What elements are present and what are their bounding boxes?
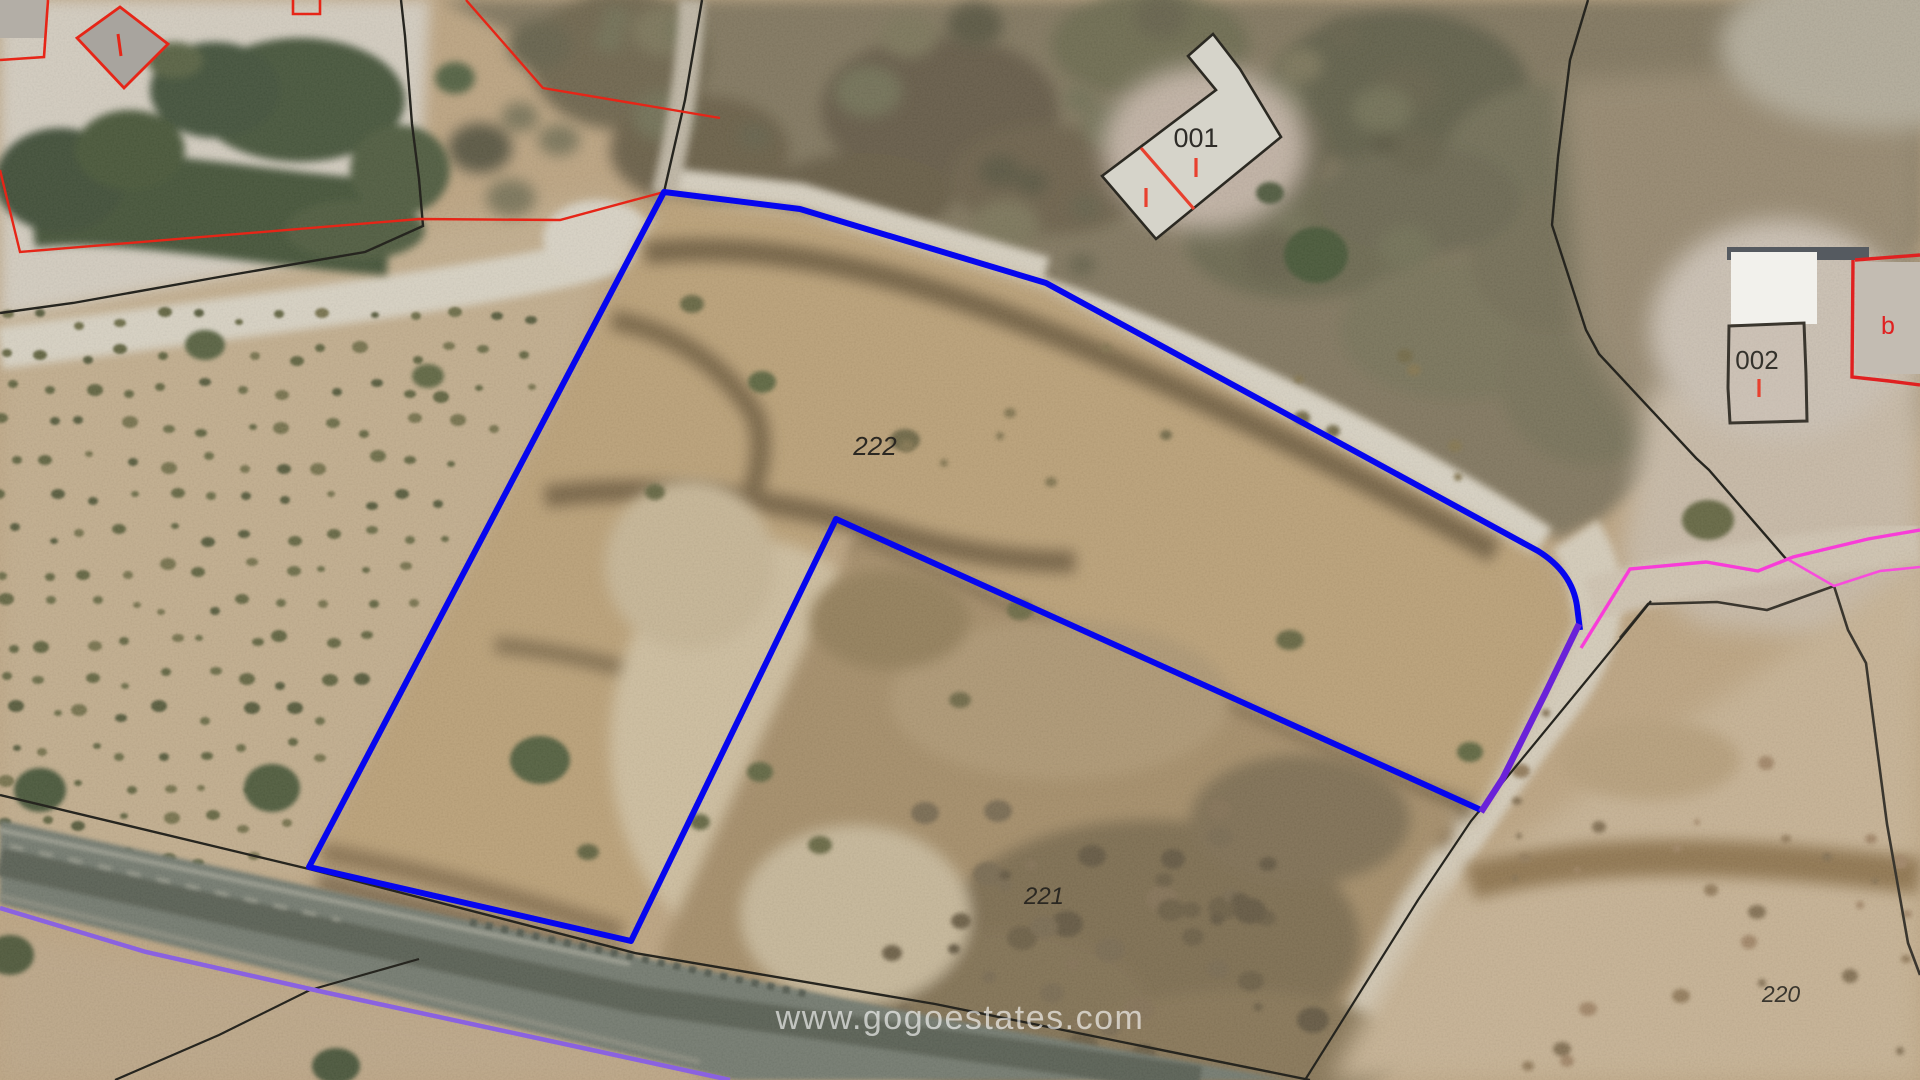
svg-text:221: 221 — [1023, 883, 1064, 910]
svg-text:www.gogoestates.com: www.gogoestates.com — [775, 999, 1145, 1037]
svg-text:220: 220 — [1761, 981, 1801, 1007]
svg-text:b: b — [1881, 312, 1895, 340]
svg-text:222: 222 — [852, 431, 897, 461]
svg-text:001: 001 — [1173, 123, 1218, 153]
svg-text:002: 002 — [1735, 345, 1778, 375]
